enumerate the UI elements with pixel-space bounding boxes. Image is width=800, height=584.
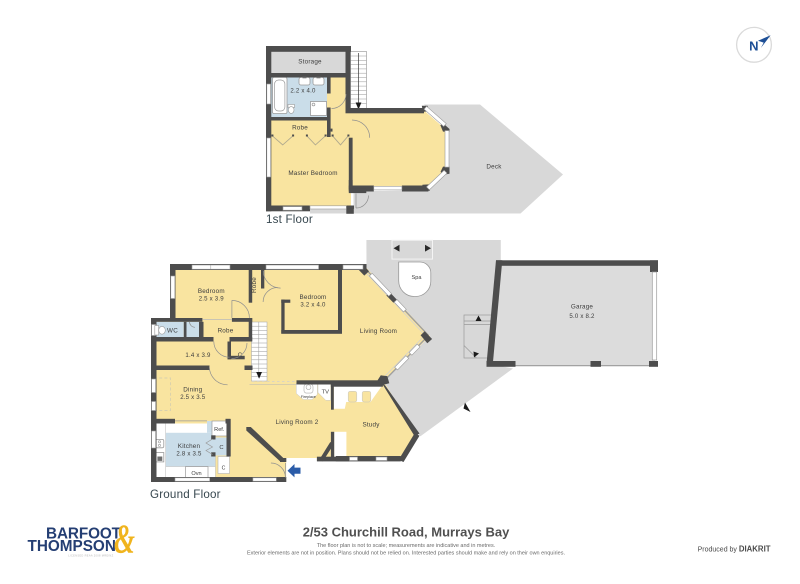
svg-text:Living Room: Living Room [360,328,397,335]
svg-text:Exterior elements are not in p: Exterior elements are not in position. P… [247,551,565,557]
svg-text:Ground Floor: Ground Floor [150,488,221,501]
svg-text:&: & [114,516,135,562]
svg-text:C: C [222,466,226,472]
svg-text:Robe: Robe [218,327,234,334]
svg-text:C: C [219,445,223,451]
svg-text:2.5 x 3.9: 2.5 x 3.9 [199,296,225,303]
svg-text:2.8 x 3.5: 2.8 x 3.5 [176,450,202,457]
svg-text:LICENSED REAA 2008 MREINZ: LICENSED REAA 2008 MREINZ [68,553,113,557]
svg-text:Fireplace: Fireplace [301,394,316,399]
svg-text:C: C [238,352,243,359]
svg-text:Bedroom: Bedroom [300,294,327,301]
svg-text:1.4 x 3.9: 1.4 x 3.9 [185,352,211,359]
svg-text:THOMPSON: THOMPSON [28,538,116,555]
svg-text:The floor plan is not to scale: The floor plan is not to scale; measurem… [317,543,496,549]
svg-text:Robe: Robe [292,124,308,131]
svg-text:2.5 x 3.5: 2.5 x 3.5 [180,394,206,401]
svg-text:1st Floor: 1st Floor [266,213,313,226]
svg-text:2.2 x 4.0: 2.2 x 4.0 [290,88,316,95]
svg-text:3.2 x 4.0: 3.2 x 4.0 [300,302,326,309]
svg-text:Ovn: Ovn [191,471,201,477]
svg-text:WC: WC [167,327,178,334]
svg-text:Living Room 2: Living Room 2 [276,419,319,426]
svg-text:2/53 Churchill Road, Murrays B: 2/53 Churchill Road, Murrays Bay [303,524,510,539]
svg-text:Storage: Storage [298,59,322,66]
svg-text:Dining: Dining [183,387,202,394]
svg-text:Garage: Garage [571,304,594,311]
svg-text:Robe: Robe [251,277,258,293]
svg-text:Master Bedroom: Master Bedroom [288,170,337,177]
svg-text:Deck: Deck [486,164,502,171]
svg-text:TV: TV [322,389,330,395]
svg-text:Spa: Spa [412,275,423,281]
svg-text:N: N [749,39,758,54]
svg-text:5.0 x 8.2: 5.0 x 8.2 [569,313,595,320]
svg-text:Bedroom: Bedroom [198,288,225,295]
svg-text:Kitchen: Kitchen [178,443,201,450]
svg-text:Study: Study [362,422,380,429]
svg-text:Ref.: Ref. [214,427,225,433]
svg-text:Produced by DIAKRIT: Produced by DIAKRIT [698,545,771,554]
